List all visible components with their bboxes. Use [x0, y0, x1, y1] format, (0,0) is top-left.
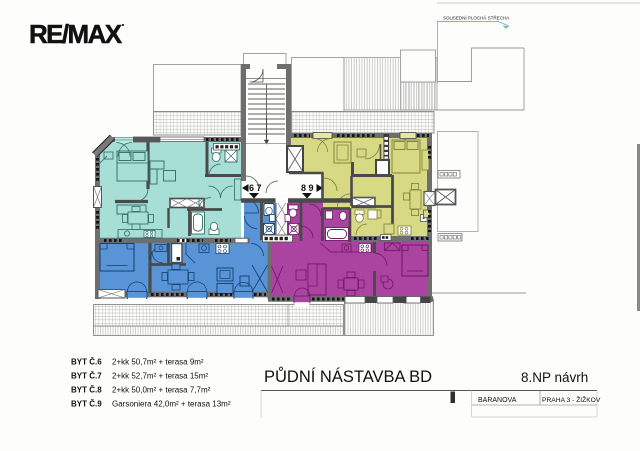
- svg-text:8.NP návrh: 8.NP návrh: [521, 370, 588, 385]
- svg-text:2+kk 50,0m² + terasa 7,7m²: 2+kk 50,0m² + terasa 7,7m²: [112, 386, 211, 395]
- svg-text:BARANOVA: BARANOVA: [478, 397, 517, 404]
- svg-text:6 7: 6 7: [249, 183, 262, 193]
- svg-text:BYT Č.7: BYT Č.7: [71, 372, 102, 381]
- svg-text:2+kk 50,7m² + terasa 9m²: 2+kk 50,7m² + terasa 9m²: [112, 358, 204, 367]
- svg-text:RE/MAX: RE/MAX: [29, 19, 123, 49]
- svg-text:BYT Č.6: BYT Č.6: [71, 358, 102, 367]
- svg-text:Garsoniera 42,0m² + terasa 13: Garsoniera 42,0m² + terasa 13m²: [112, 400, 231, 409]
- svg-text:BYT Č.8: BYT Č.8: [71, 386, 102, 395]
- svg-text:PŮDNÍ NÁSTAVBA BD: PŮDNÍ NÁSTAVBA BD: [264, 367, 432, 386]
- svg-text:8 9: 8 9: [301, 183, 314, 193]
- svg-text:BYT Č.9: BYT Č.9: [71, 400, 102, 409]
- svg-text:2+kk 52,7m² + terasa 15m²: 2+kk 52,7m² + terasa 15m²: [112, 372, 208, 381]
- svg-text:SOUSEDNÍ PLOCHÁ STŘECHA: SOUSEDNÍ PLOCHÁ STŘECHA: [443, 14, 510, 21]
- svg-text:PRAHA 3 - ŽIŽKOV: PRAHA 3 - ŽIŽKOV: [542, 395, 601, 404]
